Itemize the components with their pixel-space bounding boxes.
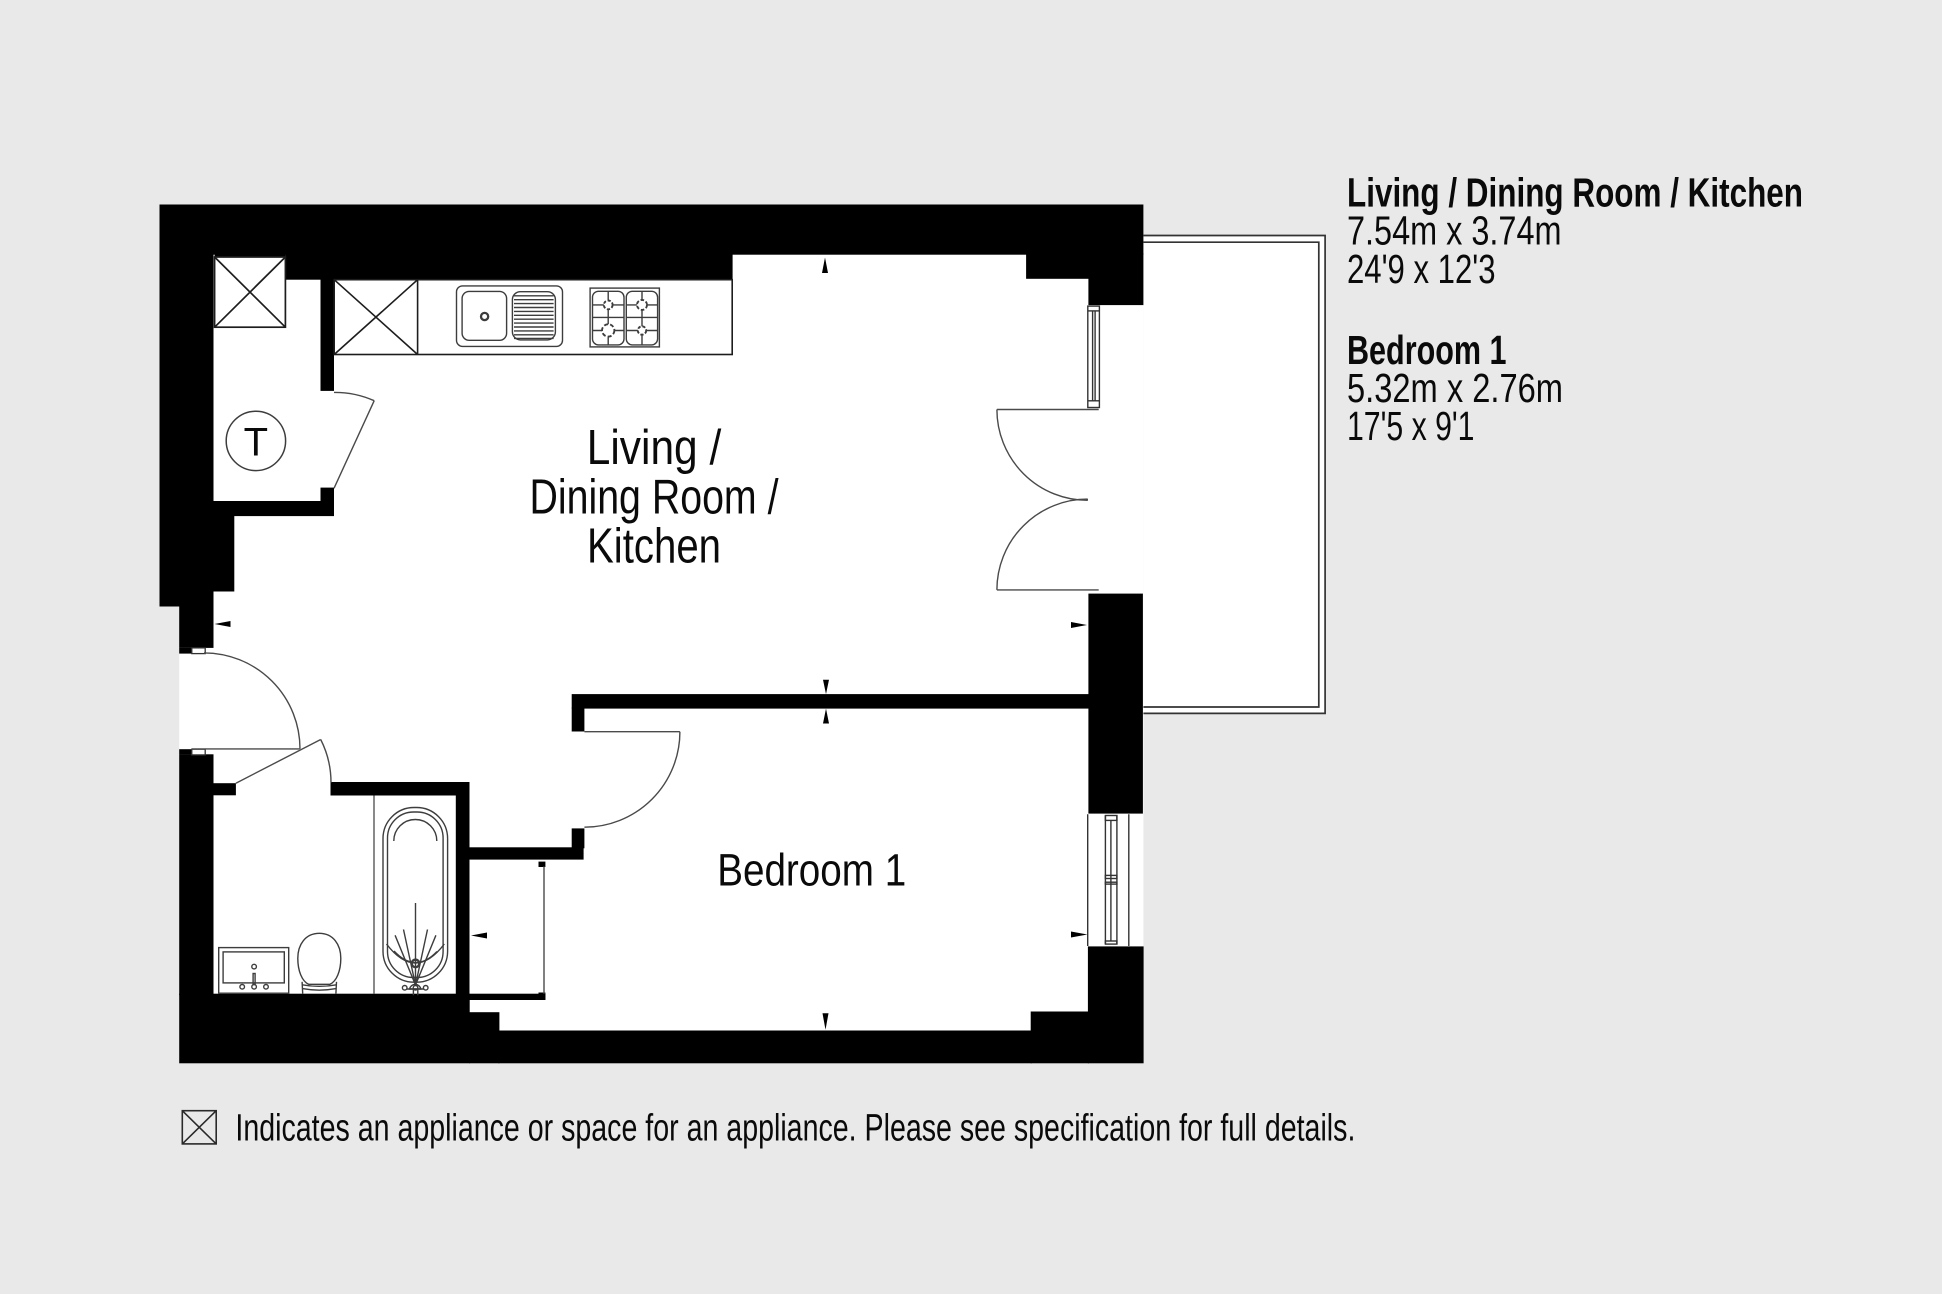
svg-text:Bedroom 1: Bedroom 1 <box>717 845 906 896</box>
svg-text:Dining Room /: Dining Room / <box>530 470 779 524</box>
svg-text:Living /: Living / <box>587 421 722 475</box>
svg-text:17'5 x 9'1: 17'5 x 9'1 <box>1347 403 1475 449</box>
svg-text:Kitchen: Kitchen <box>587 520 721 574</box>
svg-text:T: T <box>244 421 268 465</box>
svg-text:24'9 x 12'3: 24'9 x 12'3 <box>1347 246 1496 292</box>
svg-text:Indicates an appliance or spac: Indicates an appliance or space for an a… <box>235 1108 1355 1150</box>
